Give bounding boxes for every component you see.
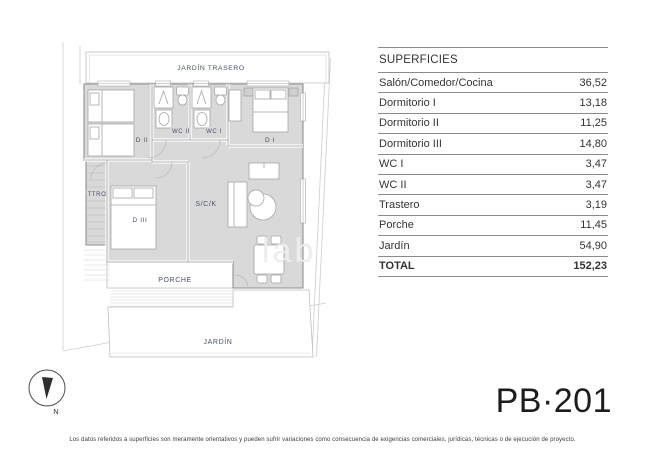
row-value: 3,47 <box>586 179 607 191</box>
bed-d2-b <box>88 124 134 156</box>
table-row: Salón/Comedor/Cocina 36,52 <box>378 73 608 93</box>
row-value: 14,80 <box>579 138 607 150</box>
table-row: Dormitorio I 13,18 <box>378 93 608 113</box>
row-label: WC II <box>379 179 407 191</box>
row-value: 3,19 <box>586 199 607 211</box>
bed-d2-a <box>88 90 134 122</box>
row-value: 36,52 <box>579 77 607 89</box>
label-wc-2: WC II <box>172 129 190 135</box>
compass: N <box>29 370 65 416</box>
surfaces-table-title: SUPERFICIES <box>378 47 608 73</box>
label-jardin-trasero: JARDÍN TRASERO <box>177 63 245 72</box>
north-label: N <box>53 407 58 416</box>
label-dormitorio-1: D I <box>265 137 275 144</box>
label-wc-1: WC I <box>206 129 222 135</box>
label-dormitorio-2: D II <box>136 137 149 144</box>
label-trastero: TTRO <box>88 192 107 198</box>
row-label: Trastero <box>379 199 420 211</box>
table-row: WC II 3,47 <box>378 175 608 195</box>
surfaces-table: SUPERFICIES Salón/Comedor/Cocina 36,52 D… <box>378 47 608 277</box>
porch-area <box>107 262 233 306</box>
label-jardin: JARDÍN <box>204 337 233 346</box>
label-porche: PORCHE <box>158 277 192 284</box>
row-label: Dormitorio II <box>379 117 439 129</box>
row-value: 11,25 <box>580 117 607 129</box>
row-value: 54,90 <box>579 240 607 252</box>
watermark: lab <box>262 232 316 270</box>
label-salon: S/C/K <box>195 201 216 208</box>
north-arrow-icon <box>42 377 53 399</box>
table-total-row: TOTAL 152,23 <box>378 257 608 277</box>
total-label: TOTAL <box>379 260 415 272</box>
plan-code: PB·201 <box>496 382 612 421</box>
label-dormitorio-3: D III <box>133 217 148 224</box>
row-value: 11,45 <box>580 219 607 231</box>
row-label: Salón/Comedor/Cocina <box>379 77 493 89</box>
wardrobe-d1 <box>229 90 241 121</box>
row-value: 13,18 <box>579 97 607 109</box>
row-value: 3,47 <box>586 158 607 170</box>
porch-steps-hatch <box>110 291 233 306</box>
plan-sheet: lab JARDÍN TRASERO D II WC II WC I D I T… <box>0 0 645 451</box>
disclaimer-text: Los datos referidos a superficies son me… <box>0 437 645 443</box>
table-row: Porche 11,45 <box>378 216 608 236</box>
table-row: Jardín 54,90 <box>378 236 608 256</box>
row-label: WC I <box>379 158 403 170</box>
total-value: 152,23 <box>573 260 607 272</box>
table-row: Trastero 3,19 <box>378 195 608 215</box>
row-label: Porche <box>379 219 414 231</box>
table-row: Dormitorio II 11,25 <box>378 114 608 134</box>
table-row: WC I 3,47 <box>378 155 608 175</box>
row-label: Dormitorio III <box>379 138 442 150</box>
table-row: Dormitorio III 14,80 <box>378 134 608 154</box>
row-label: Jardín <box>379 240 410 252</box>
row-label: Dormitorio I <box>379 97 436 109</box>
